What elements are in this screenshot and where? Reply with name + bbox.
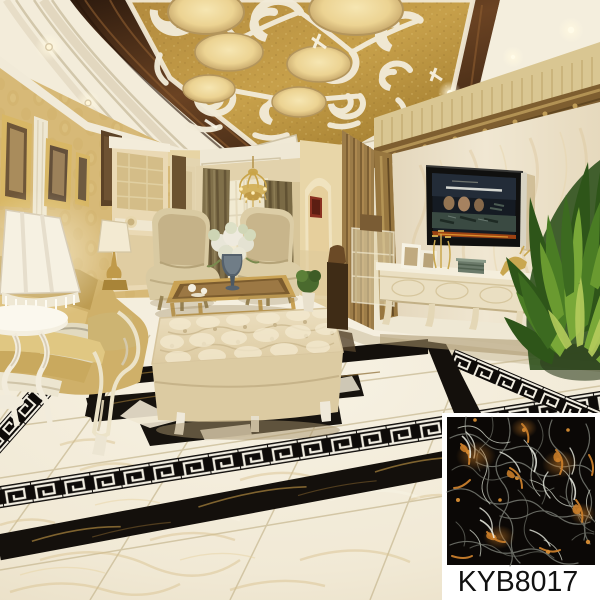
svg-text:KYB8017: KYB8017 — [458, 566, 578, 598]
